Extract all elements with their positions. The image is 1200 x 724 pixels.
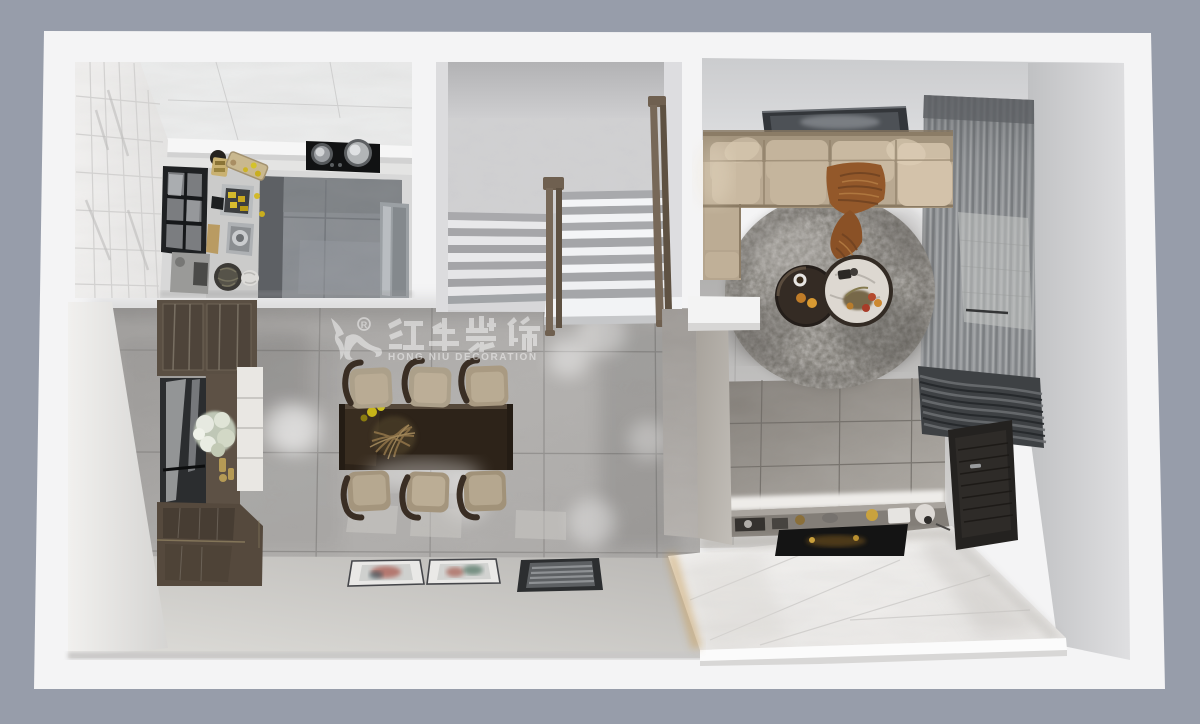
svg-text:HONG NIU DECORATION: HONG NIU DECORATION [388,352,538,363]
svg-text:R: R [361,320,368,330]
